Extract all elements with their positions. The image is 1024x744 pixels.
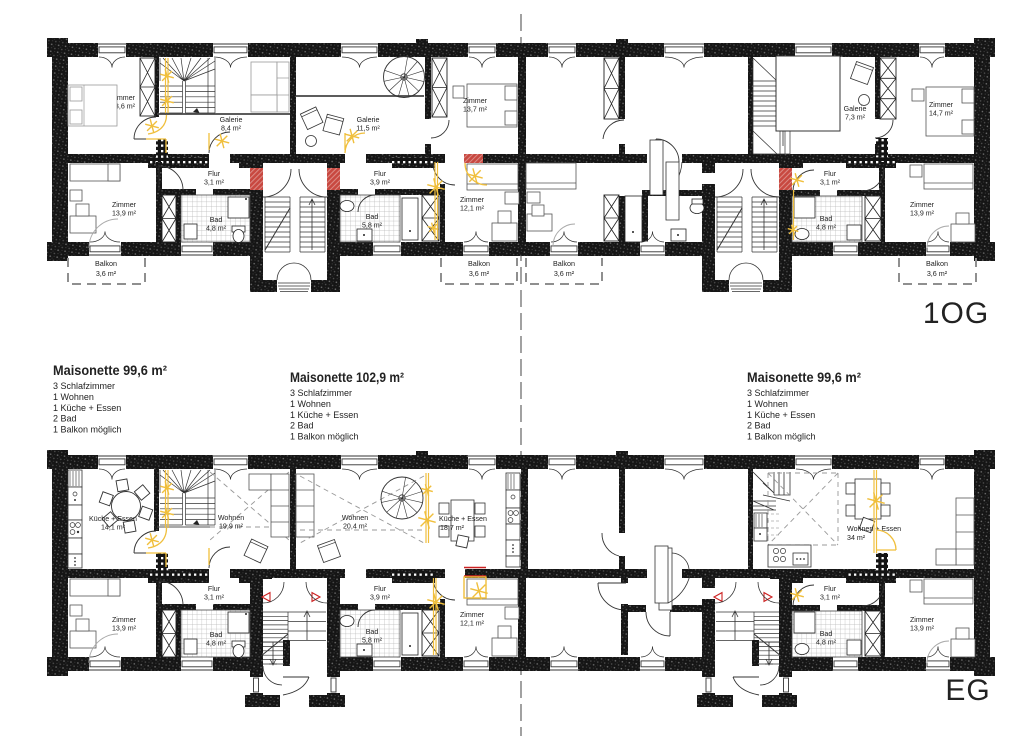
svg-text:20,4 m²: 20,4 m² (343, 523, 368, 531)
svg-text:Zimmer: Zimmer (910, 201, 935, 209)
svg-text:Balkon: Balkon (553, 259, 575, 268)
svg-text:19,9 m²: 19,9 m² (219, 523, 244, 531)
svg-text:3,1 m²: 3,1 m² (204, 179, 225, 187)
svg-text:1 Wohnen: 1 Wohnen (53, 392, 94, 402)
svg-text:Flur: Flur (208, 170, 221, 178)
svg-text:Galerie: Galerie (220, 116, 243, 124)
svg-text:Küche + Essen: Küche + Essen (89, 515, 137, 523)
svg-text:34 m²: 34 m² (847, 534, 866, 542)
svg-text:13,9 m²: 13,9 m² (112, 625, 137, 633)
svg-text:Zimmer: Zimmer (112, 201, 137, 209)
svg-text:3,9 m²: 3,9 m² (370, 179, 391, 187)
svg-text:14,1 m²: 14,1 m² (101, 524, 126, 532)
svg-text:1OG: 1OG (923, 297, 989, 330)
svg-text:3,6 m²: 3,6 m² (96, 269, 117, 278)
svg-text:3,1 m²: 3,1 m² (820, 594, 841, 602)
svg-text:1 Wohnen: 1 Wohnen (290, 399, 331, 409)
svg-text:Zimmer: Zimmer (460, 611, 485, 619)
svg-text:3 Schlafzimmer: 3 Schlafzimmer (747, 388, 809, 398)
svg-text:3,9 m²: 3,9 m² (370, 594, 391, 602)
svg-text:3,6 m²: 3,6 m² (469, 269, 490, 278)
svg-text:Flur: Flur (374, 585, 387, 593)
svg-text:Maisonette 99,6 m²: Maisonette 99,6 m² (747, 370, 861, 385)
svg-text:Flur: Flur (374, 170, 387, 178)
svg-text:7,3 m²: 7,3 m² (845, 114, 866, 122)
svg-text:1 Balkon möglich: 1 Balkon möglich (290, 432, 359, 442)
svg-text:Flur: Flur (824, 170, 837, 178)
svg-text:1 Balkon möglich: 1 Balkon möglich (53, 425, 122, 435)
svg-text:3,6 m²: 3,6 m² (927, 269, 948, 278)
svg-text:18,7 m²: 18,7 m² (440, 524, 465, 532)
svg-text:5,8 m²: 5,8 m² (362, 222, 383, 230)
svg-text:Bad: Bad (366, 628, 379, 636)
svg-text:1 Balkon möglich: 1 Balkon möglich (747, 432, 816, 442)
svg-text:3 Schlafzimmer: 3 Schlafzimmer (53, 381, 115, 391)
svg-text:2 Bad: 2 Bad (747, 421, 771, 431)
svg-text:Bad: Bad (820, 630, 833, 638)
svg-text:Maisonette 99,6 m²: Maisonette 99,6 m² (53, 363, 167, 378)
svg-text:8,4 m²: 8,4 m² (221, 125, 242, 133)
svg-text:EG: EG (945, 674, 990, 707)
svg-text:Küche + Essen: Küche + Essen (439, 515, 487, 523)
svg-text:Zimmer: Zimmer (929, 101, 954, 109)
svg-text:Galerie: Galerie (357, 116, 380, 124)
svg-text:11,5 m²: 11,5 m² (356, 125, 380, 133)
svg-text:Bad: Bad (210, 216, 223, 224)
svg-text:Maisonette 102,9 m²: Maisonette 102,9 m² (290, 370, 404, 385)
svg-text:Flur: Flur (208, 585, 221, 593)
svg-text:4,8 m²: 4,8 m² (816, 224, 837, 232)
svg-text:3,1 m²: 3,1 m² (820, 179, 841, 187)
svg-text:Zimmer: Zimmer (460, 196, 485, 204)
svg-text:Bad: Bad (210, 631, 223, 639)
svg-text:5,8 m²: 5,8 m² (362, 637, 383, 645)
svg-text:Galerie: Galerie (844, 105, 867, 113)
svg-text:Flur: Flur (824, 585, 837, 593)
svg-text:12,1 m²: 12,1 m² (460, 205, 485, 213)
svg-text:3 Schlafzimmer: 3 Schlafzimmer (290, 388, 352, 398)
svg-text:1 Wohnen: 1 Wohnen (747, 399, 788, 409)
svg-text:1 Küche + Essen: 1 Küche + Essen (53, 403, 121, 413)
svg-text:Bad: Bad (820, 215, 833, 223)
svg-text:14,7 m²: 14,7 m² (929, 110, 954, 118)
svg-text:3,1 m²: 3,1 m² (204, 594, 225, 602)
svg-text:Wohnen: Wohnen (342, 514, 368, 522)
svg-text:Zimmer: Zimmer (910, 616, 935, 624)
svg-text:13,9 m²: 13,9 m² (112, 210, 137, 218)
svg-text:4,8 m²: 4,8 m² (206, 225, 227, 233)
svg-text:Balkon: Balkon (468, 259, 490, 268)
svg-text:1 Küche + Essen: 1 Küche + Essen (290, 410, 358, 420)
svg-text:2 Bad: 2 Bad (290, 421, 314, 431)
svg-text:Wohnen: Wohnen (218, 514, 244, 522)
svg-text:13,9 m²: 13,9 m² (910, 210, 935, 218)
svg-text:13,9 m²: 13,9 m² (910, 625, 935, 633)
svg-text:Bad: Bad (366, 213, 379, 221)
svg-text:Balkon: Balkon (95, 259, 117, 268)
svg-text:2 Bad: 2 Bad (53, 414, 77, 424)
svg-text:13,7 m²: 13,7 m² (463, 106, 488, 114)
svg-text:1 Küche + Essen: 1 Küche + Essen (747, 410, 815, 420)
svg-text:12,1 m²: 12,1 m² (460, 620, 485, 628)
svg-text:4,8 m²: 4,8 m² (206, 640, 227, 648)
svg-text:Balkon: Balkon (926, 259, 948, 268)
svg-text:3,6 m²: 3,6 m² (554, 269, 575, 278)
svg-text:Zimmer: Zimmer (112, 616, 137, 624)
svg-text:4,8 m²: 4,8 m² (816, 639, 837, 647)
svg-text:Zimmer: Zimmer (463, 97, 488, 105)
